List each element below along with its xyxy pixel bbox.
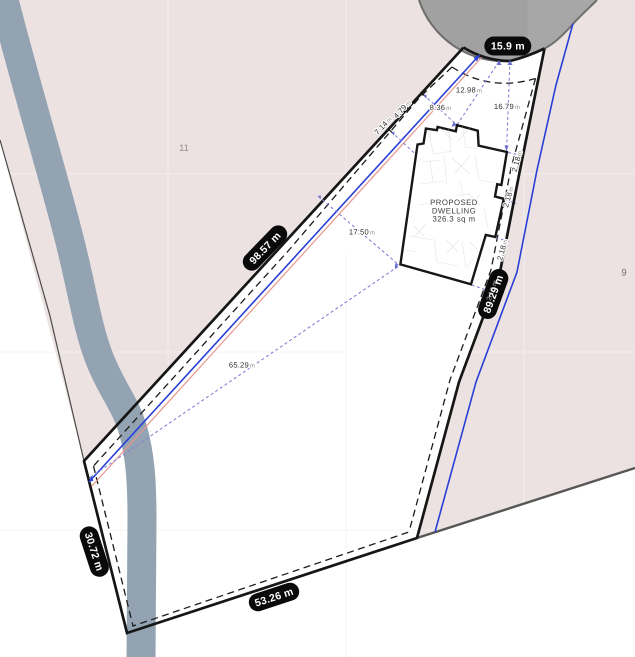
svg-text:11: 11 (179, 143, 189, 154)
svg-text:15.9 m: 15.9 m (491, 41, 525, 53)
svg-text:9: 9 (621, 268, 626, 279)
svg-text:326.3 sq m: 326.3 sq m (432, 215, 475, 224)
